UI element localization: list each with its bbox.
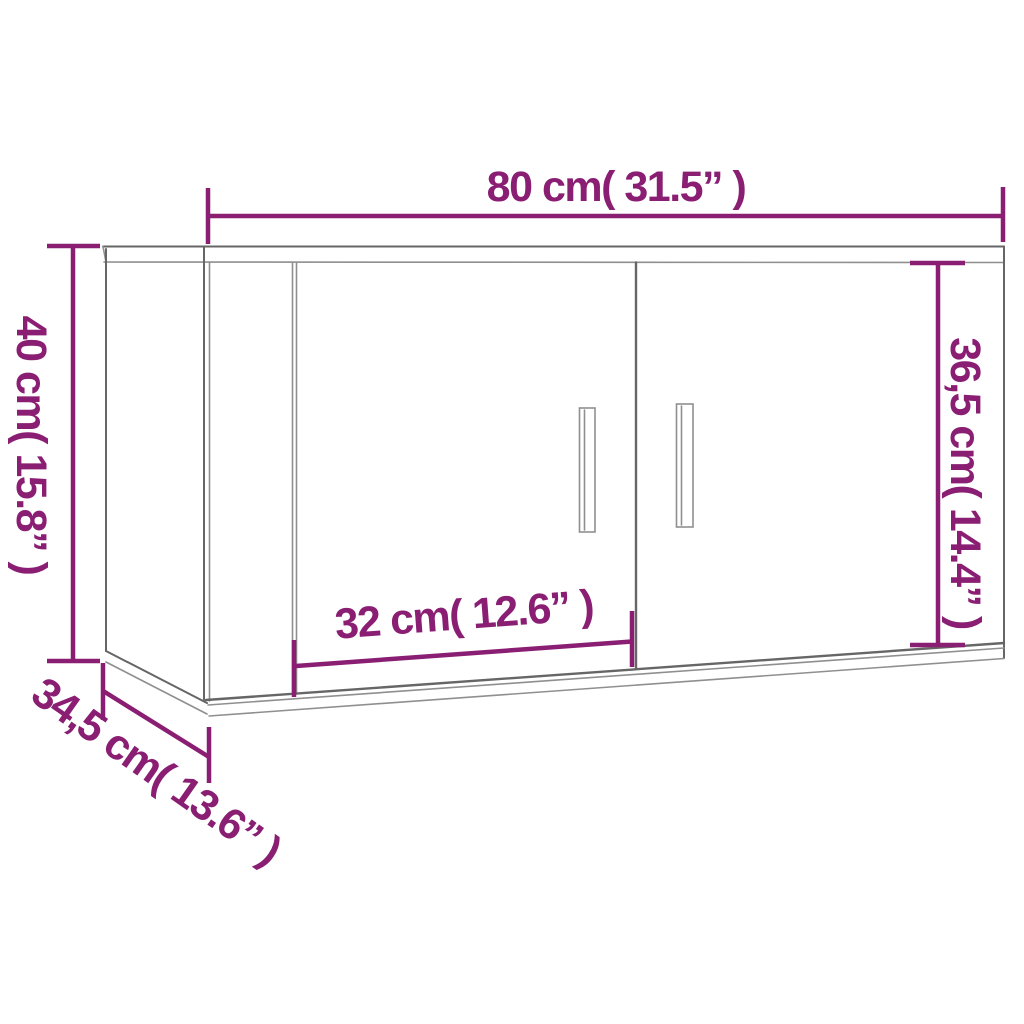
dimension-height: 40 cm( 15.8” ) bbox=[7, 246, 100, 661]
door-width-label: 32 cm( 12.6” ) bbox=[333, 581, 595, 648]
front-band-bottom-edge bbox=[209, 659, 1004, 717]
page: { "colors": { "accent": "#8A1E73", "line… bbox=[0, 0, 1024, 1024]
dimension-width: 80 cm( 31.5” ) bbox=[208, 163, 1003, 244]
height-label: 40 cm( 15.8” ) bbox=[7, 316, 55, 575]
top-band-bottom-edge bbox=[104, 262, 1004, 263]
width-label: 80 cm( 31.5” ) bbox=[487, 163, 746, 211]
front-bottom-edge-outer bbox=[206, 643, 1004, 700]
dimension-annotations: 80 cm( 31.5” ) 40 cm( 15.8” ) 36,5 cm( 1… bbox=[7, 163, 1003, 875]
front-bottom-edge-inner bbox=[208, 648, 1004, 705]
left-door-handle bbox=[580, 408, 596, 532]
dimension-door-width: 32 cm( 12.6” ) bbox=[294, 581, 632, 697]
side-bottom-edge bbox=[106, 651, 207, 703]
diagram-canvas: 80 cm( 31.5” ) 40 cm( 15.8” ) 36,5 cm( 1… bbox=[0, 0, 1024, 1024]
left-door-handle-outline bbox=[580, 408, 596, 532]
side-band-edge bbox=[106, 662, 207, 714]
right-door-handle bbox=[677, 404, 694, 527]
product-dimension-diagram: 80 cm( 31.5” ) 40 cm( 15.8” ) 36,5 cm( 1… bbox=[0, 0, 1024, 1024]
dimension-door-height: 36,5 cm( 14.4” ) bbox=[910, 263, 989, 645]
right-door-handle-outline bbox=[677, 404, 694, 527]
dimension-depth: 34,5 cm( 13.6” ) bbox=[23, 663, 289, 875]
depth-label: 34,5 cm( 13.6” ) bbox=[23, 668, 289, 875]
door-height-label: 36,5 cm( 14.4” ) bbox=[941, 337, 989, 629]
